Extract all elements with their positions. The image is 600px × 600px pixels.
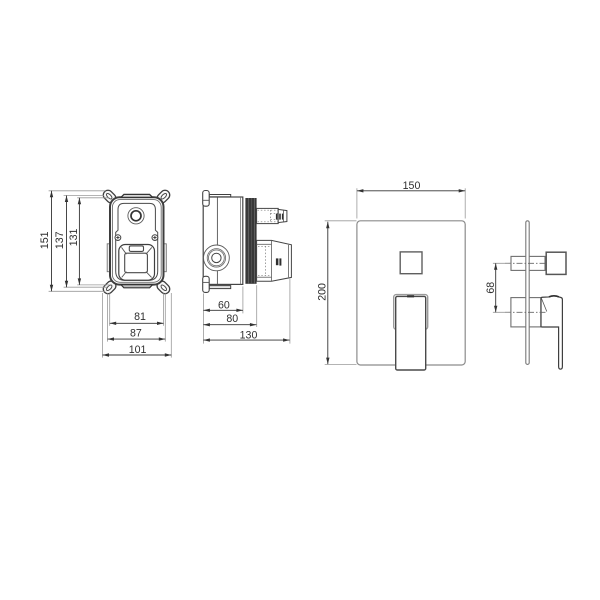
svg-text:80: 80 xyxy=(226,313,238,325)
svg-text:68: 68 xyxy=(485,282,497,294)
svg-text:130: 130 xyxy=(240,329,258,341)
svg-text:131: 131 xyxy=(68,228,80,246)
svg-text:81: 81 xyxy=(134,311,146,323)
svg-text:151: 151 xyxy=(39,231,51,249)
svg-text:87: 87 xyxy=(130,328,142,340)
svg-text:101: 101 xyxy=(129,344,147,356)
svg-text:200: 200 xyxy=(316,283,328,301)
svg-text:137: 137 xyxy=(54,231,66,249)
svg-text:150: 150 xyxy=(403,180,421,192)
svg-text:60: 60 xyxy=(218,299,230,311)
